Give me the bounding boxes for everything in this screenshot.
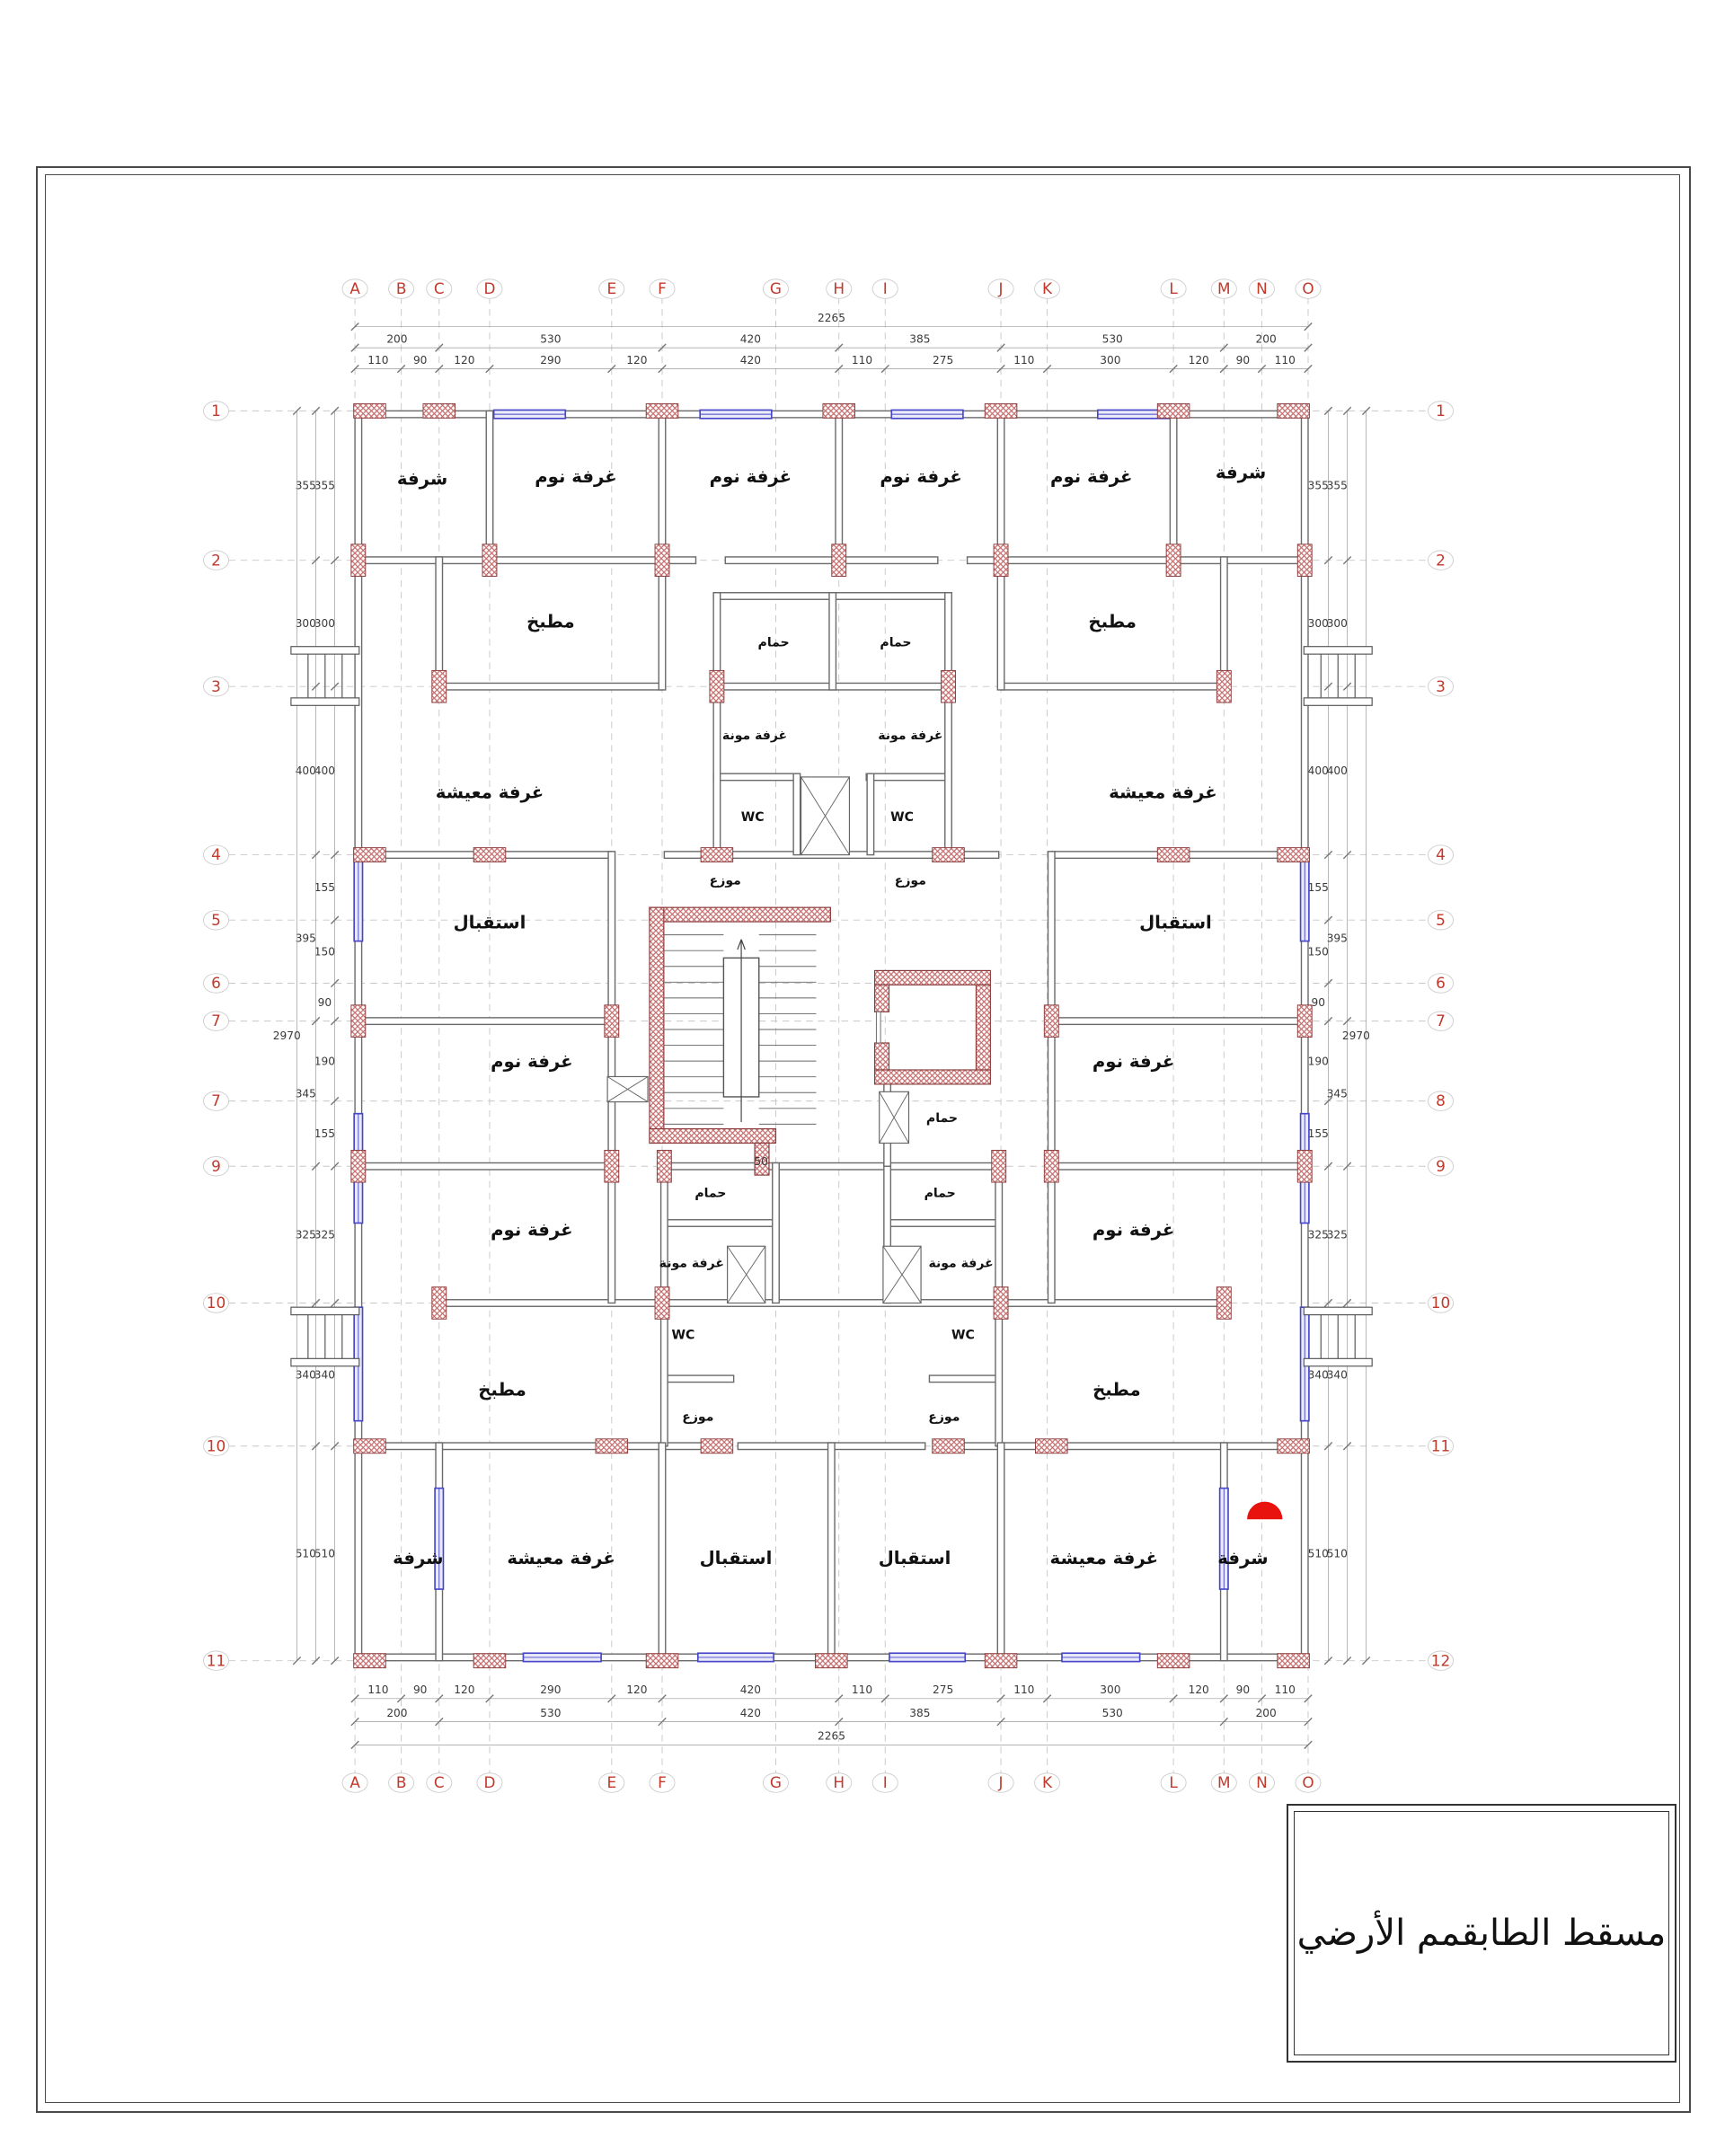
room-label: حمام bbox=[758, 636, 790, 650]
column bbox=[710, 670, 724, 702]
svg-text:N: N bbox=[1256, 279, 1268, 297]
room-label: WC bbox=[672, 1328, 695, 1342]
svg-text:2: 2 bbox=[1436, 551, 1446, 569]
svg-text:12: 12 bbox=[1431, 1651, 1450, 1669]
dim-value: 90 bbox=[1236, 1683, 1250, 1696]
row-bubble-right: 4 bbox=[1428, 845, 1453, 865]
column-bubble-top: O bbox=[1296, 279, 1321, 299]
svg-text:H: H bbox=[833, 279, 845, 297]
dim-value: 355 bbox=[1327, 480, 1348, 492]
row-bubble-right: 1 bbox=[1428, 402, 1453, 421]
room-label: شرفة bbox=[1217, 1548, 1268, 1568]
column-bubble-bottom: N bbox=[1249, 1773, 1274, 1793]
column bbox=[354, 848, 386, 862]
elevator-shaft bbox=[875, 970, 991, 1083]
dim-value: 300 bbox=[1308, 617, 1329, 630]
dim-value: 275 bbox=[933, 1683, 953, 1696]
room-label: مطبخ bbox=[1088, 612, 1137, 632]
row-bubble-right: 5 bbox=[1428, 910, 1453, 930]
row-bubble-left: 5 bbox=[203, 910, 228, 930]
room-label: غرفة معيشة bbox=[1050, 1548, 1159, 1568]
room-label: استقبال bbox=[454, 913, 526, 933]
column-bubble-bottom: I bbox=[872, 1773, 898, 1793]
row-bubble-right: 2 bbox=[1428, 551, 1453, 570]
dim-value: 110 bbox=[1275, 354, 1296, 367]
column bbox=[1297, 1150, 1312, 1182]
svg-text:E: E bbox=[606, 279, 616, 297]
column-bubble-top: H bbox=[827, 279, 852, 299]
row-bubble-left: 4 bbox=[203, 845, 228, 865]
column bbox=[473, 848, 506, 862]
room-label: غرفة معيشة bbox=[1109, 782, 1217, 802]
dim-value: 300 bbox=[314, 617, 335, 630]
room-label: غرفة معيشة bbox=[436, 782, 544, 802]
column bbox=[482, 544, 497, 577]
dim-value: 150 bbox=[314, 946, 335, 959]
column bbox=[351, 544, 366, 577]
column bbox=[1035, 1439, 1067, 1454]
room-label: غرفة مونة bbox=[659, 1257, 724, 1271]
column bbox=[823, 403, 855, 418]
svg-text:3: 3 bbox=[1436, 677, 1446, 695]
room-label: غرفة مونة bbox=[878, 729, 942, 743]
column bbox=[351, 1150, 366, 1182]
row-bubble-right: 3 bbox=[1428, 676, 1453, 696]
row-bubble-left: 10 bbox=[203, 1294, 228, 1313]
column bbox=[701, 848, 733, 862]
column bbox=[1157, 1654, 1190, 1668]
dim-value: 2265 bbox=[818, 312, 845, 324]
dim-value: 290 bbox=[540, 1683, 561, 1696]
dim-value: 400 bbox=[314, 764, 335, 777]
column bbox=[354, 403, 386, 418]
room-label: غرفة نوم bbox=[491, 1220, 572, 1241]
column bbox=[655, 544, 669, 577]
column bbox=[1157, 848, 1190, 862]
column bbox=[423, 403, 456, 418]
dim-value: 345 bbox=[1327, 1088, 1348, 1100]
svg-text:A: A bbox=[349, 279, 360, 297]
row-bubble-right: 7 bbox=[1428, 1012, 1453, 1031]
dim-value: 200 bbox=[1256, 332, 1277, 345]
column bbox=[432, 1287, 447, 1320]
column bbox=[1216, 670, 1231, 702]
dim-value: 400 bbox=[1308, 764, 1329, 777]
column bbox=[1166, 544, 1181, 577]
dim-value: 300 bbox=[1100, 354, 1120, 367]
column bbox=[933, 1439, 965, 1454]
row-bubble-right: 9 bbox=[1428, 1156, 1453, 1176]
room-label: موزع bbox=[710, 873, 741, 888]
column bbox=[473, 1654, 506, 1668]
room-label: شرفة bbox=[397, 468, 447, 489]
column-bubble-top: J bbox=[988, 279, 1013, 299]
column bbox=[1278, 1439, 1310, 1454]
room-label: غرفة نوم bbox=[535, 466, 616, 487]
column bbox=[1278, 848, 1310, 862]
column-bubble-bottom: H bbox=[827, 1773, 852, 1793]
dim-value: 110 bbox=[1013, 1683, 1034, 1696]
column-bubble-top: D bbox=[477, 279, 502, 299]
room-label: مطبخ bbox=[526, 612, 575, 632]
column-bubble-top: K bbox=[1035, 279, 1060, 299]
dim-value: 300 bbox=[1100, 1683, 1120, 1696]
svg-text:I: I bbox=[883, 279, 888, 297]
room-label: غرفة مونة bbox=[928, 1257, 993, 1271]
dim-value: 90 bbox=[1311, 996, 1324, 1009]
room-label: غرفة نوم bbox=[880, 466, 961, 487]
column bbox=[605, 1005, 619, 1038]
svg-text:D: D bbox=[483, 1773, 495, 1791]
dim-value: 120 bbox=[454, 354, 474, 367]
row-bubble-left: 9 bbox=[203, 1156, 228, 1176]
dim-value: 340 bbox=[1308, 1368, 1329, 1381]
svg-text:5: 5 bbox=[1436, 911, 1446, 929]
svg-text:D: D bbox=[483, 279, 495, 297]
dim-value: 110 bbox=[367, 1683, 388, 1696]
room-label: شرفة bbox=[1216, 462, 1266, 482]
svg-text:10: 10 bbox=[207, 1436, 226, 1454]
dim-value: 385 bbox=[909, 332, 930, 345]
dim-value: 530 bbox=[1102, 332, 1123, 345]
dim-value: 110 bbox=[367, 354, 388, 367]
svg-text:5: 5 bbox=[211, 911, 221, 929]
dim-value: 510 bbox=[296, 1547, 316, 1560]
svg-text:N: N bbox=[1256, 1773, 1268, 1791]
column-bubble-top: L bbox=[1161, 279, 1186, 299]
column bbox=[1278, 1654, 1310, 1668]
room-label: موزع bbox=[682, 1410, 713, 1425]
room-label: WC bbox=[890, 810, 914, 825]
dim-value: 200 bbox=[386, 332, 407, 345]
svg-text:I: I bbox=[883, 1773, 888, 1791]
column-bubble-top: N bbox=[1249, 279, 1274, 299]
column bbox=[832, 544, 846, 577]
dim-value: 90 bbox=[318, 996, 332, 1009]
dim-value: 420 bbox=[740, 1683, 761, 1696]
svg-text:J: J bbox=[998, 1773, 1004, 1791]
dim-value: 275 bbox=[933, 354, 953, 367]
dim-value: 400 bbox=[296, 764, 316, 777]
column bbox=[933, 848, 965, 862]
column bbox=[354, 1439, 386, 1454]
svg-text:8: 8 bbox=[1436, 1091, 1446, 1109]
svg-text:11: 11 bbox=[207, 1651, 226, 1669]
column bbox=[985, 403, 1017, 418]
room-label: شرفة bbox=[393, 1548, 443, 1568]
column-bubble-top: I bbox=[872, 279, 898, 299]
dim-value: 420 bbox=[740, 1707, 761, 1719]
dim-value: 120 bbox=[626, 354, 647, 367]
dim-value: 120 bbox=[454, 1683, 474, 1696]
dim-value: 530 bbox=[540, 1707, 561, 1719]
svg-text:6: 6 bbox=[211, 974, 221, 992]
room-label: غرفة نوم bbox=[710, 466, 792, 487]
dim-value: 110 bbox=[852, 1683, 872, 1696]
svg-text:7: 7 bbox=[211, 1091, 221, 1109]
svg-text:A: A bbox=[349, 1773, 360, 1791]
svg-text:E: E bbox=[606, 1773, 616, 1791]
room-label: حمام bbox=[694, 1186, 726, 1200]
svg-text:L: L bbox=[1169, 279, 1178, 297]
column-bubble-bottom: B bbox=[389, 1773, 414, 1793]
room-label: استقبال bbox=[1139, 913, 1212, 933]
column-bubble-bottom: G bbox=[763, 1773, 788, 1793]
dim-value: 510 bbox=[1327, 1547, 1348, 1560]
room-label: WC bbox=[951, 1328, 975, 1342]
column bbox=[1297, 544, 1312, 577]
column-bubble-bottom: J bbox=[988, 1773, 1013, 1793]
column bbox=[994, 1287, 1008, 1320]
svg-text:G: G bbox=[770, 1773, 782, 1791]
sheet: 2265200530420385530200110901202901204201… bbox=[0, 0, 1725, 2156]
room-label: حمام bbox=[880, 636, 911, 650]
svg-text:4: 4 bbox=[211, 845, 221, 863]
column bbox=[1216, 1287, 1231, 1320]
dim-value: 90 bbox=[1236, 354, 1250, 367]
room-label: موزع bbox=[895, 873, 926, 888]
column-bubble-top: B bbox=[389, 279, 414, 299]
svg-text:2: 2 bbox=[211, 551, 221, 569]
column-bubble-bottom: K bbox=[1035, 1773, 1060, 1793]
dim-value: 510 bbox=[314, 1547, 335, 1560]
dim-value: 190 bbox=[314, 1055, 335, 1067]
column-bubble-bottom: L bbox=[1161, 1773, 1186, 1793]
title-block-inner: مسقط الطابقمم الأرضي bbox=[1294, 1811, 1669, 2055]
dim-value: 155 bbox=[1308, 881, 1329, 894]
svg-text:10: 10 bbox=[207, 1294, 226, 1312]
dim-value: 120 bbox=[1189, 1683, 1209, 1696]
room-label: استقبال bbox=[700, 1548, 773, 1568]
dim-value: 400 bbox=[1327, 764, 1348, 777]
row-bubble-left: 6 bbox=[203, 974, 228, 994]
column bbox=[992, 1150, 1006, 1182]
column bbox=[646, 403, 678, 418]
column bbox=[816, 1654, 848, 1668]
room-label: غرفة نوم bbox=[1092, 1051, 1174, 1072]
dim-value: 290 bbox=[540, 354, 561, 367]
dim-value: 110 bbox=[1275, 1683, 1296, 1696]
dim-value: 110 bbox=[852, 354, 872, 367]
row-bubble-right: 6 bbox=[1428, 974, 1453, 994]
column-bubble-top: M bbox=[1211, 279, 1236, 299]
column bbox=[1278, 403, 1310, 418]
svg-text:1: 1 bbox=[211, 402, 221, 420]
column bbox=[655, 1287, 669, 1320]
svg-text:B: B bbox=[396, 1773, 407, 1791]
row-bubble-right: 8 bbox=[1428, 1091, 1453, 1111]
column-bubble-bottom: C bbox=[427, 1773, 452, 1793]
column bbox=[605, 1150, 619, 1182]
room-label: غرفة معيشة bbox=[507, 1548, 615, 1568]
dim-value: 420 bbox=[740, 354, 761, 367]
room-label: WC bbox=[741, 810, 765, 825]
svg-text:10: 10 bbox=[1431, 1294, 1450, 1312]
column-bubble-bottom: D bbox=[477, 1773, 502, 1793]
svg-text:B: B bbox=[396, 279, 407, 297]
dim-value: 155 bbox=[314, 881, 335, 894]
row-bubble-right: 10 bbox=[1428, 1294, 1453, 1313]
row-bubble-left: 2 bbox=[203, 551, 228, 570]
dim-value: 355 bbox=[1308, 480, 1329, 492]
row-bubble-left: 3 bbox=[203, 676, 228, 696]
room-label: غرفة نوم bbox=[491, 1051, 572, 1072]
stair-dim-50: 50 bbox=[754, 1155, 767, 1168]
dim-value: 120 bbox=[1189, 354, 1209, 367]
walls bbox=[355, 411, 1308, 1660]
column bbox=[701, 1439, 733, 1454]
svg-text:C: C bbox=[434, 279, 445, 297]
column-bubble-bottom: A bbox=[342, 1773, 367, 1793]
dim-value: 200 bbox=[1256, 1707, 1277, 1719]
column-bubble-top: F bbox=[650, 279, 675, 299]
dim-value: 510 bbox=[1308, 1547, 1329, 1560]
dim-value: 90 bbox=[413, 1683, 427, 1696]
svg-text:7: 7 bbox=[211, 1012, 221, 1029]
floor-plan-drawing: 2265200530420385530200110901202901204201… bbox=[170, 243, 1474, 1816]
dim-value: 345 bbox=[296, 1088, 316, 1100]
svg-text:7: 7 bbox=[1436, 1012, 1446, 1029]
row-bubble-right: 11 bbox=[1428, 1436, 1453, 1456]
column-bubble-top: A bbox=[342, 279, 367, 299]
svg-text:F: F bbox=[658, 1773, 667, 1791]
room-label: غرفة نوم bbox=[1050, 466, 1132, 487]
row-bubble-right: 12 bbox=[1428, 1651, 1453, 1671]
room-label: غرفة نوم bbox=[1092, 1220, 1174, 1241]
svg-text:3: 3 bbox=[211, 677, 221, 695]
dim-value: 2970 bbox=[1342, 1029, 1370, 1042]
column-bubble-bottom: F bbox=[650, 1773, 675, 1793]
svg-text:C: C bbox=[434, 1773, 445, 1791]
column-bubble-bottom: E bbox=[599, 1773, 624, 1793]
dim-value: 300 bbox=[296, 617, 316, 630]
dim-value: 325 bbox=[1327, 1229, 1348, 1241]
dim-value: 90 bbox=[413, 354, 427, 367]
drawing-title: مسقط الطابقمم الأرضي bbox=[1297, 1913, 1667, 1954]
elevator-door bbox=[876, 1012, 880, 1043]
dim-value: 155 bbox=[314, 1127, 335, 1140]
svg-text:H: H bbox=[833, 1773, 845, 1791]
external-stairs bbox=[291, 647, 1372, 1366]
column bbox=[1044, 1150, 1058, 1182]
column-bubble-top: G bbox=[763, 279, 788, 299]
dim-value: 2970 bbox=[273, 1029, 301, 1042]
dim-value: 300 bbox=[1327, 617, 1348, 630]
row-bubble-left: 7 bbox=[203, 1012, 228, 1031]
dim-value: 325 bbox=[314, 1229, 335, 1241]
column bbox=[354, 1654, 386, 1668]
row-bubble-left: 11 bbox=[203, 1651, 228, 1671]
dim-value: 385 bbox=[909, 1707, 930, 1719]
room-label: غرفة مونة bbox=[722, 729, 787, 743]
dim-value: 325 bbox=[296, 1229, 316, 1241]
column-bubble-bottom: M bbox=[1211, 1773, 1236, 1793]
svg-text:K: K bbox=[1042, 279, 1053, 297]
column bbox=[657, 1150, 671, 1182]
door-swing-symbol bbox=[1247, 1502, 1282, 1520]
column bbox=[1157, 403, 1190, 418]
room-label: مطبخ bbox=[1092, 1380, 1141, 1401]
room-label: استقبال bbox=[879, 1548, 951, 1568]
dim-value: 340 bbox=[1327, 1368, 1348, 1381]
column bbox=[942, 670, 956, 702]
svg-text:1: 1 bbox=[1436, 402, 1446, 420]
stair-core: 50 bbox=[650, 907, 830, 1175]
dim-value: 325 bbox=[1308, 1229, 1329, 1241]
dim-value: 395 bbox=[1327, 932, 1348, 944]
svg-text:11: 11 bbox=[1431, 1436, 1450, 1454]
column-bubble-bottom: O bbox=[1296, 1773, 1321, 1793]
room-label: حمام bbox=[924, 1186, 956, 1200]
svg-text:K: K bbox=[1042, 1773, 1053, 1791]
dim-value: 150 bbox=[1308, 946, 1329, 959]
svg-text:9: 9 bbox=[211, 1157, 221, 1175]
row-bubble-left: 10 bbox=[203, 1436, 228, 1456]
column bbox=[1044, 1005, 1058, 1038]
row-bubble-left: 7 bbox=[203, 1091, 228, 1111]
svg-text:F: F bbox=[658, 279, 667, 297]
room-label: موزع bbox=[928, 1410, 960, 1425]
svg-text:9: 9 bbox=[1436, 1157, 1446, 1175]
svg-text:G: G bbox=[770, 279, 782, 297]
dim-value: 530 bbox=[1102, 1707, 1123, 1719]
dim-value: 190 bbox=[1308, 1055, 1329, 1067]
dim-value: 110 bbox=[1013, 354, 1034, 367]
column-bubble-top: C bbox=[427, 279, 452, 299]
dim-value: 420 bbox=[740, 332, 761, 345]
dim-value: 120 bbox=[626, 1683, 647, 1696]
svg-text:O: O bbox=[1302, 1773, 1314, 1791]
row-bubble-left: 1 bbox=[203, 402, 228, 421]
column-bubble-top: E bbox=[599, 279, 624, 299]
column bbox=[646, 1654, 678, 1668]
dim-value: 355 bbox=[296, 480, 316, 492]
column bbox=[1297, 1005, 1312, 1038]
column bbox=[994, 544, 1008, 577]
svg-text:J: J bbox=[998, 279, 1004, 297]
dim-value: 355 bbox=[314, 480, 335, 492]
dim-value: 2265 bbox=[818, 1730, 845, 1743]
dim-value: 200 bbox=[386, 1707, 407, 1719]
dim-value: 395 bbox=[296, 932, 316, 944]
column bbox=[432, 670, 447, 702]
column bbox=[985, 1654, 1017, 1668]
dim-value: 155 bbox=[1308, 1127, 1329, 1140]
svg-text:M: M bbox=[1217, 1773, 1231, 1791]
dim-value: 340 bbox=[296, 1368, 316, 1381]
column bbox=[596, 1439, 628, 1454]
room-label: مطبخ bbox=[478, 1380, 526, 1401]
svg-text:6: 6 bbox=[1436, 974, 1446, 992]
dim-value: 340 bbox=[314, 1368, 335, 1381]
svg-text:4: 4 bbox=[1436, 845, 1446, 863]
svg-text:O: O bbox=[1302, 279, 1314, 297]
column bbox=[351, 1005, 366, 1038]
room-label: حمام bbox=[926, 1111, 958, 1126]
dim-value: 530 bbox=[540, 332, 561, 345]
svg-text:L: L bbox=[1169, 1773, 1178, 1791]
title-block: مسقط الطابقمم الأرضي bbox=[1287, 1804, 1676, 2063]
svg-text:M: M bbox=[1217, 279, 1231, 297]
